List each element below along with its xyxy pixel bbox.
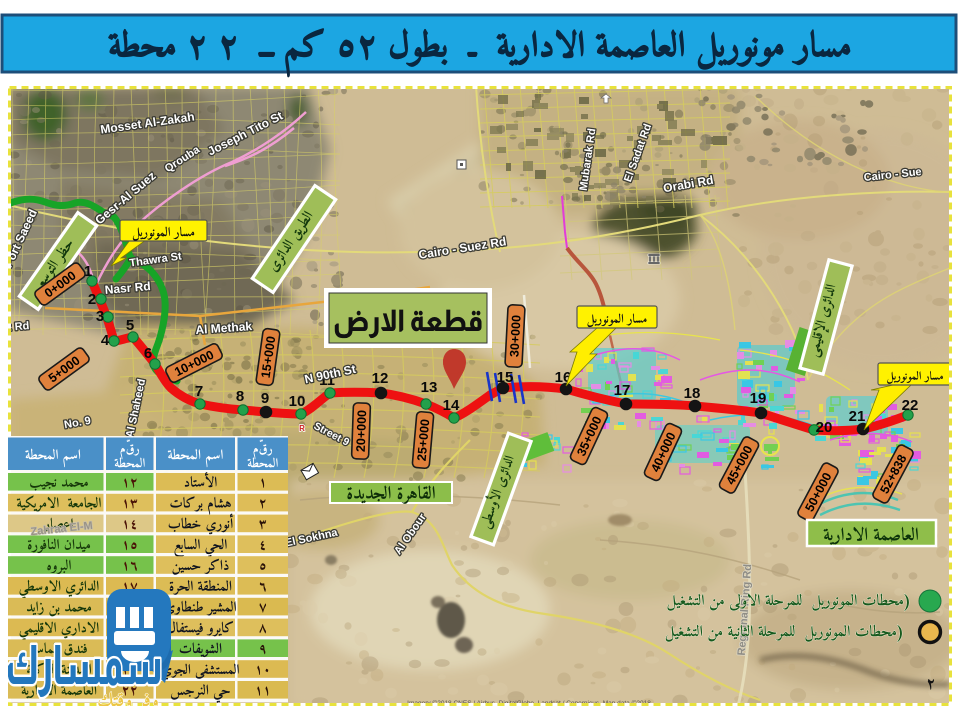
svg-text:20+000: 20+000 xyxy=(354,410,369,453)
svg-text:13: 13 xyxy=(421,379,438,396)
svg-text:19: 19 xyxy=(750,390,767,407)
svg-text:8: 8 xyxy=(236,388,244,405)
svg-text:2: 2 xyxy=(88,291,96,308)
svg-text:20: 20 xyxy=(816,419,833,436)
svg-text:3: 3 xyxy=(96,308,104,325)
svg-text:18: 18 xyxy=(684,385,701,402)
svg-text:7: 7 xyxy=(195,383,203,400)
svg-text:12: 12 xyxy=(372,370,389,387)
svg-text:21: 21 xyxy=(849,408,866,425)
svg-text:6: 6 xyxy=(144,345,152,362)
svg-text:10: 10 xyxy=(289,393,306,410)
svg-text:4: 4 xyxy=(101,332,110,349)
svg-text:15: 15 xyxy=(497,369,514,386)
svg-text:17: 17 xyxy=(614,382,631,399)
svg-text:30+000: 30+000 xyxy=(507,315,523,358)
svg-text:14: 14 xyxy=(443,397,460,414)
svg-text:9: 9 xyxy=(261,390,269,407)
svg-text:5: 5 xyxy=(126,317,134,334)
svg-text:22: 22 xyxy=(902,397,919,414)
svg-text:R: R xyxy=(299,424,305,433)
